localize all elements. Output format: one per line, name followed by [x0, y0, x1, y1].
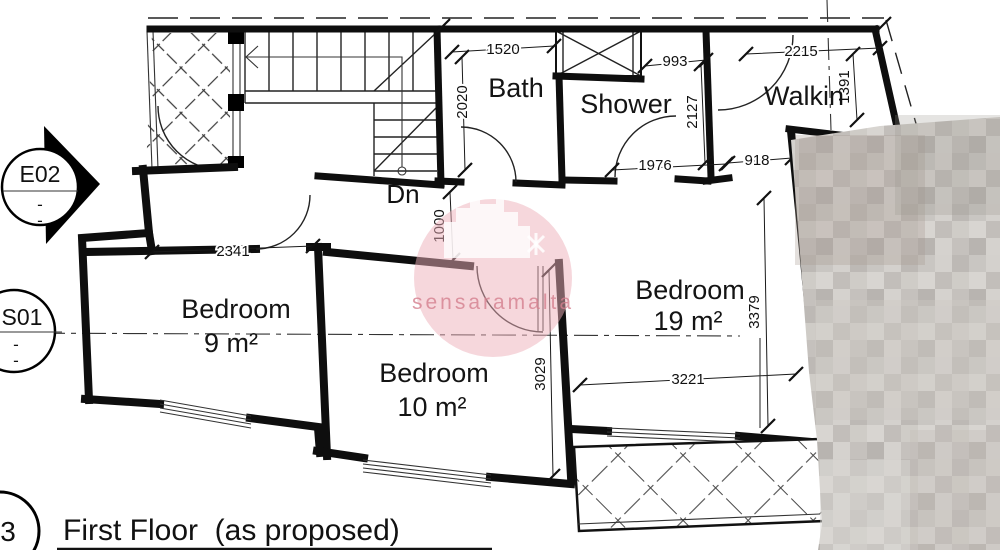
- dim-bedroom9-width: 2341: [216, 243, 249, 260]
- shower-bottom-wall: [562, 179, 708, 181]
- stair-break-line: [374, 108, 436, 171]
- dim-bath-width: 1520: [486, 41, 519, 58]
- stair-bottom-wall: [318, 176, 441, 185]
- dim-bath-length: 2020: [454, 85, 471, 118]
- section-marker-label: S01: [2, 304, 43, 330]
- room-label-bedroom19: Bedroom: [635, 275, 745, 305]
- marker-dash: -: [37, 211, 43, 230]
- bedroom10-window: [363, 460, 491, 487]
- bath-door-arc: [461, 127, 516, 182]
- dim-walkin-width: 2215: [784, 43, 817, 60]
- dim-shower-top-width: 993: [662, 53, 687, 70]
- room-label-bedroom9: Bedroom: [181, 294, 291, 324]
- shower-right-wall: [706, 31, 711, 177]
- terrace-hatch: [574, 439, 824, 531]
- room-label-shower: Shower: [580, 89, 672, 119]
- room-area-bedroom9: 9 m²: [204, 328, 258, 358]
- bedroom9-window: [160, 400, 251, 428]
- service-shaft: [556, 31, 641, 76]
- drawing-title: First Floor (as proposed): [63, 514, 400, 547]
- dim-shower-length: 2127: [684, 95, 701, 128]
- watermark-text: sensaramalta: [412, 291, 574, 314]
- room-label-bedroom10: Bedroom: [379, 358, 489, 388]
- dim-shower-width: 1976: [638, 157, 671, 174]
- dim-bedroom19-length: 3379: [746, 295, 763, 328]
- stair-pillar: [228, 31, 244, 44]
- bedroom19-window: [607, 428, 740, 442]
- lightwell-hatch: [146, 31, 230, 170]
- room-label-walkin: Walkin: [764, 81, 844, 111]
- dim-bedroom10-length: 3029: [532, 357, 549, 390]
- lightwell-bottom-wall: [136, 167, 234, 171]
- floor-plan-page: Dn: [0, 0, 1000, 550]
- elevation-marker-label: E02: [20, 161, 61, 187]
- stair-right-wall: [437, 29, 441, 184]
- floor-plan-drawing: Dn: [0, 0, 1000, 550]
- elevation-marker-e02: E02 - -: [2, 126, 100, 244]
- dim-walkin-entry: 918: [744, 152, 769, 169]
- privacy-blur-region: [791, 115, 1000, 550]
- room-area-bedroom10: 10 m²: [397, 392, 466, 422]
- bath-bottom-wall: [438, 181, 562, 185]
- room-area-bedroom19: 19 m²: [653, 306, 722, 336]
- stair-break-line: [374, 33, 436, 91]
- dim-bedroom19-width: 3221: [671, 371, 704, 388]
- marker-dash: -: [13, 351, 19, 370]
- hall-west-walls: [82, 169, 149, 400]
- drawing-title-block: 3 First Floor (as proposed): [0, 492, 492, 550]
- bedroom10-bottom-wall: [317, 451, 571, 484]
- sheet-number: 3: [0, 516, 16, 547]
- bath-shower-divider: [559, 76, 562, 179]
- hall-door-arc: [256, 195, 310, 249]
- bedroom9-top-wall: [84, 247, 327, 252]
- room-label-bath: Bath: [488, 73, 544, 103]
- section-marker-s01: S01 - -: [0, 290, 62, 372]
- stair-pillar: [228, 94, 244, 111]
- bedroom9-bottom-wall: [85, 399, 318, 427]
